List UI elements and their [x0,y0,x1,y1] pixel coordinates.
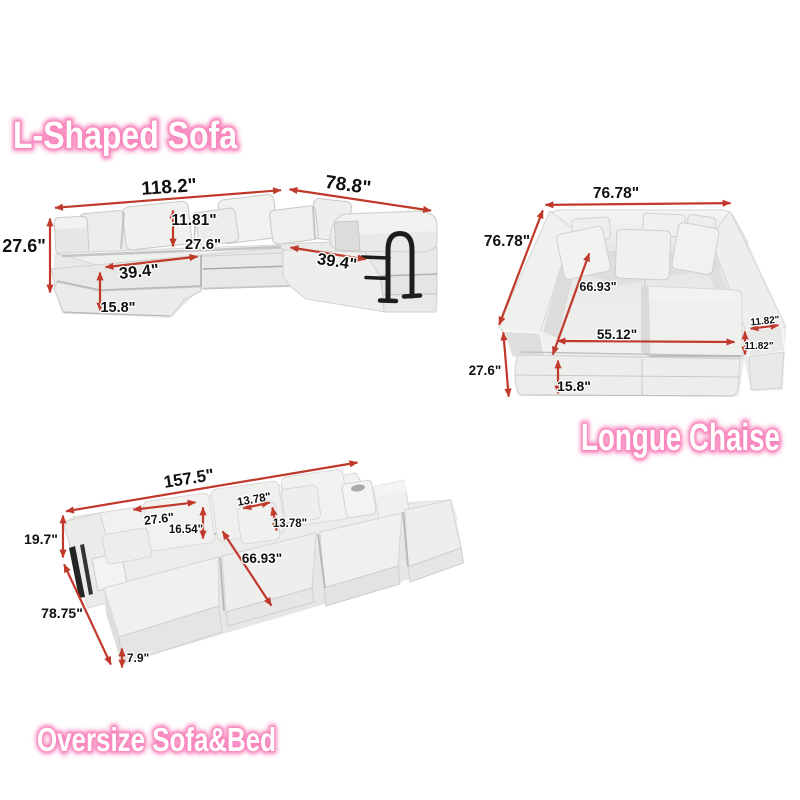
svg-text:15.8": 15.8" [557,378,591,394]
svg-text:L-Shaped Sofa: L-Shaped Sofa [13,115,238,157]
svg-text:27.6": 27.6" [469,363,502,378]
svg-text:13.78": 13.78" [273,518,307,530]
svg-text:66.93": 66.93" [579,280,616,294]
svg-text:16.54": 16.54" [169,524,203,536]
svg-text:7.9": 7.9" [127,651,149,665]
svg-text:27.6": 27.6" [2,236,46,256]
svg-text:15.8": 15.8" [100,300,135,316]
svg-text:19.7": 19.7" [24,531,58,547]
svg-text:118.2": 118.2" [141,175,198,200]
svg-text:27.6": 27.6" [185,236,221,253]
svg-text:Oversize Sofa&Bed: Oversize Sofa&Bed [37,721,276,758]
svg-text:11.82": 11.82" [744,341,773,352]
svg-text:55.12": 55.12" [597,327,637,342]
svg-text:11.81": 11.81" [171,212,216,229]
svg-text:Longue Chaise: Longue Chaise [581,417,780,459]
svg-text:66.93": 66.93" [242,551,282,566]
svg-text:76.78": 76.78" [484,233,530,250]
svg-text:78.75": 78.75" [41,605,83,621]
svg-text:76.78": 76.78" [593,185,639,202]
